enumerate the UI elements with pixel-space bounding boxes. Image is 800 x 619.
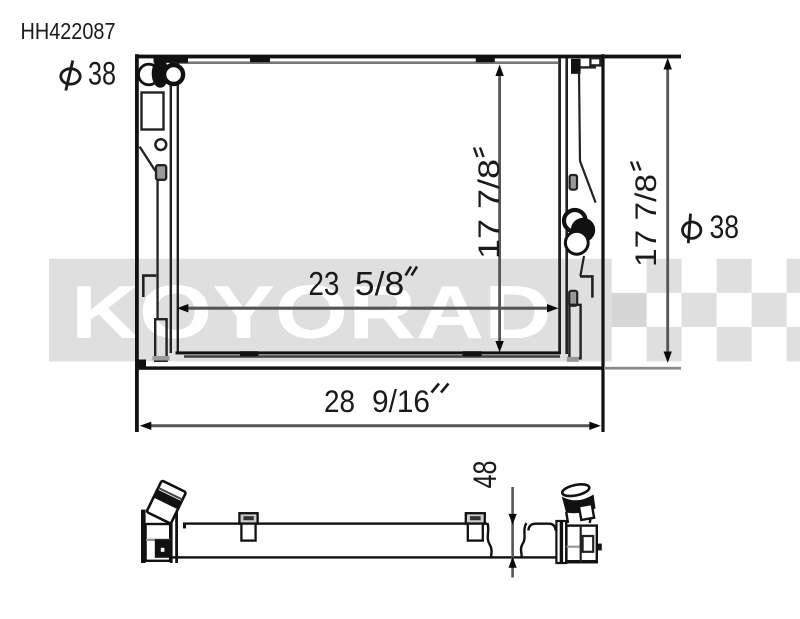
svg-text:9/16: 9/16: [372, 383, 430, 419]
svg-text:23: 23: [308, 266, 339, 303]
svg-text:17 7/8: 17 7/8: [630, 174, 663, 267]
svg-text:38: 38: [88, 56, 116, 92]
svg-text:38: 38: [710, 209, 740, 245]
svg-text:HH422087: HH422087: [21, 18, 116, 44]
svg-text:28: 28: [324, 383, 355, 419]
svg-text:17 7/8: 17 7/8: [473, 159, 506, 259]
svg-text:48: 48: [467, 461, 503, 489]
svg-text:5/8: 5/8: [355, 266, 405, 303]
